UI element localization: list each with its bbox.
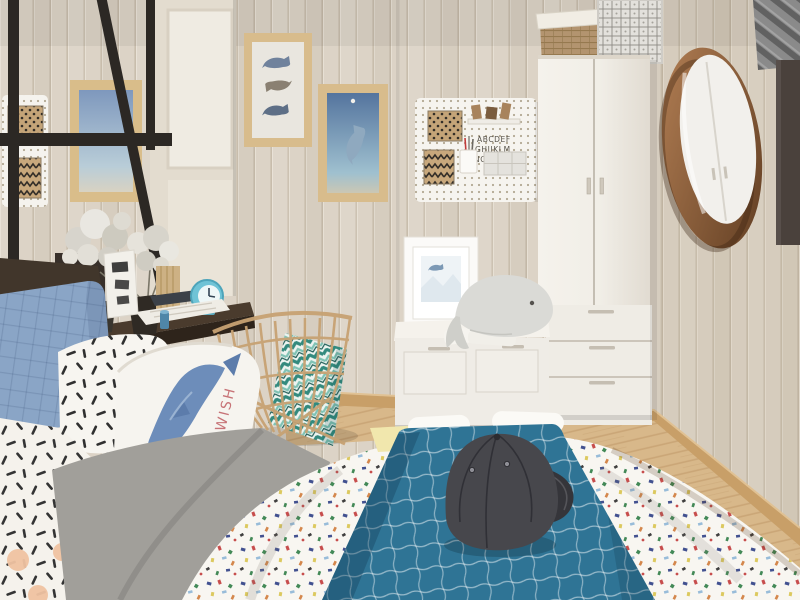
- drawer-handle-1: [588, 310, 614, 314]
- cap-eyelet-1: [469, 467, 474, 472]
- wardrobe-handle-right: [600, 178, 604, 194]
- whale-trio-frame: [244, 33, 312, 147]
- desk-paper-bag: [104, 250, 138, 318]
- bench-drawer-2: [476, 350, 538, 392]
- wardrobe-top-edge: [538, 55, 650, 59]
- door-edge-shadow: [233, 0, 236, 296]
- right-pegboard: ABCDEF GHIJKLM NOPQRST: [415, 98, 539, 202]
- wardrobe-wall-shadow: [650, 60, 657, 420]
- blue-cup: [160, 310, 169, 329]
- patterned-box: [598, 0, 662, 63]
- gray-curtain: [753, 0, 800, 70]
- drawer-handle-3: [589, 381, 615, 385]
- frame-cross-bar: [0, 133, 172, 146]
- door-panel-upper: [168, 10, 232, 168]
- cap-button: [494, 434, 500, 440]
- bedroom-photo: ABCDEF GHIJKLM NOPQRST: [0, 0, 800, 600]
- frame-post-2: [146, 0, 155, 150]
- drawer-handle-2: [589, 346, 615, 350]
- bench-drawer-1: [404, 352, 466, 394]
- plush-eye: [530, 301, 534, 305]
- tiny-figure: [351, 99, 355, 103]
- pegboard-storage-box-2: [424, 150, 454, 184]
- wardrobe-drawers: [546, 305, 652, 425]
- cap-eyelet-2: [504, 461, 509, 466]
- drawer-stack: [546, 305, 652, 425]
- diving-whale-frame: [318, 84, 388, 202]
- alphabet-line-1: ABCDEF: [477, 135, 511, 144]
- pegboard-shelf: [468, 119, 520, 124]
- mini-drawers: [484, 152, 526, 175]
- bedroom-illustration: ABCDEF GHIJKLM NOPQRST: [0, 0, 800, 600]
- wardrobe-handle-left: [587, 178, 591, 194]
- bench-handle-1: [428, 347, 450, 351]
- dark-panel-edge: [776, 60, 781, 245]
- ceiling-shadow: [0, 0, 800, 46]
- wardrobe: [536, 0, 662, 425]
- pegboard-storage-box-1: [428, 111, 462, 141]
